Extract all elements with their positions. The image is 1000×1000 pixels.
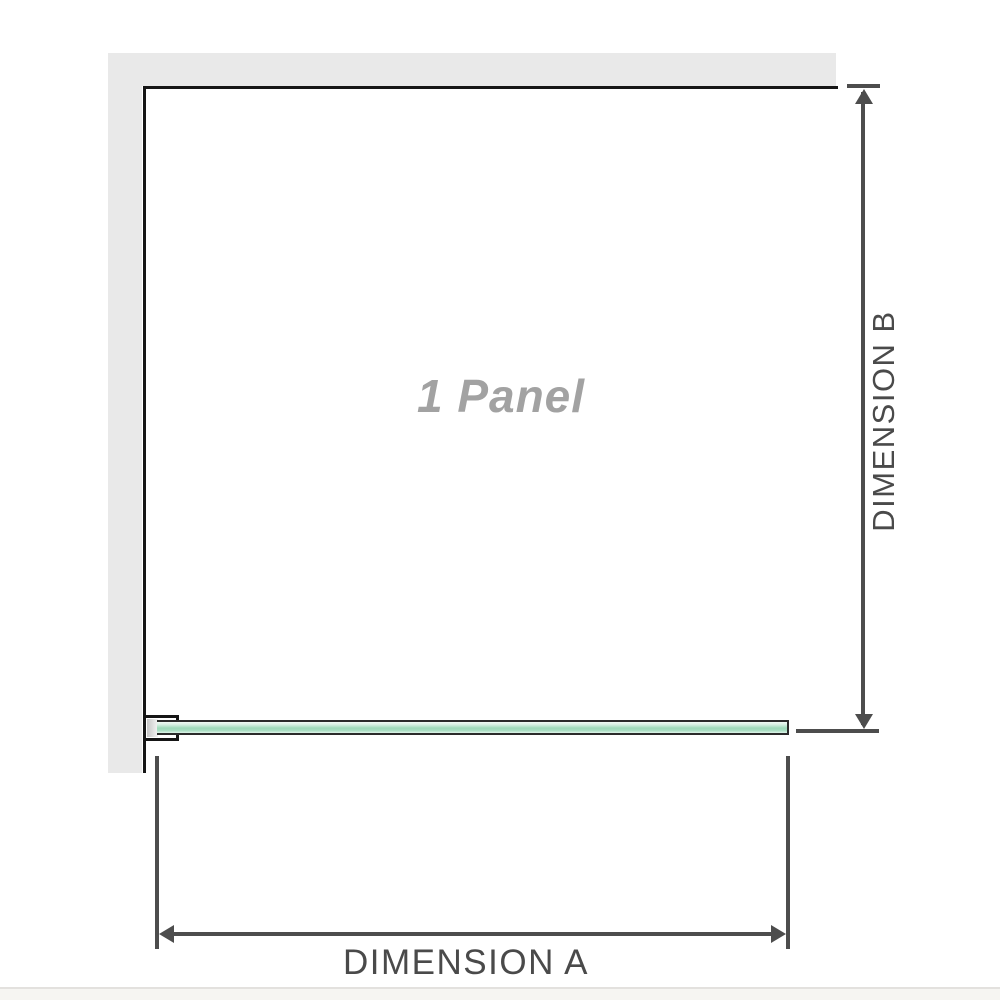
panel-outline-top xyxy=(143,86,838,89)
panel-outline-left xyxy=(143,86,146,773)
panel-count-label: 1 Panel xyxy=(301,366,701,426)
arrow-left-icon xyxy=(159,925,174,943)
wall-left-band xyxy=(108,53,142,773)
dimension-b-label: DIMENSION B xyxy=(864,251,904,591)
wall-top-band xyxy=(108,53,836,86)
dimension-b-tick-bottom xyxy=(796,729,879,733)
glass-panel-bar xyxy=(157,720,789,735)
dimension-a-extension-left xyxy=(155,756,159,949)
bottom-strip xyxy=(0,989,1000,1000)
shower-panel-dimension-diagram: 1 Panel DIMENSION B DIMENSION A xyxy=(0,0,1000,1000)
arrow-down-icon xyxy=(855,714,873,729)
dimension-a-line xyxy=(165,932,780,936)
arrow-right-icon xyxy=(771,925,786,943)
dimension-a-label: DIMENSION A xyxy=(266,942,666,984)
dimension-b-tick-top xyxy=(847,84,880,88)
dimension-a-extension-right xyxy=(786,756,790,949)
arrow-up-icon xyxy=(855,89,873,104)
